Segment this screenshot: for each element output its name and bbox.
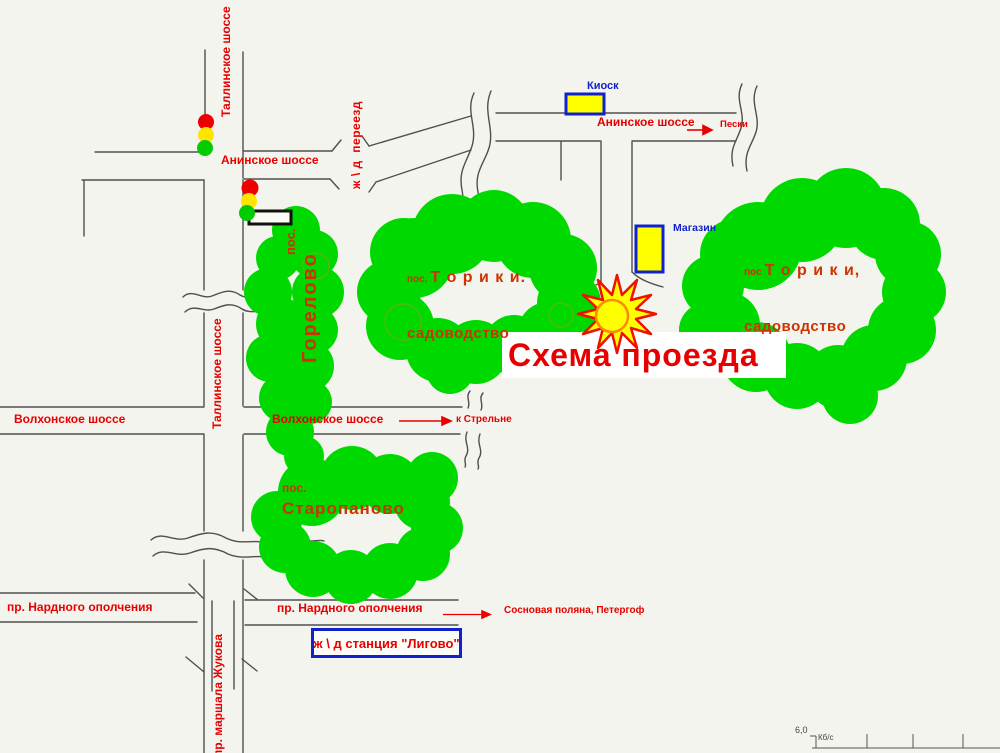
road-label-tallinskoe-top: Таллинское шоссе: [220, 6, 233, 117]
speed-value: 6,0: [795, 726, 808, 736]
sun-icon: [596, 300, 628, 332]
shop-rect: [636, 226, 663, 272]
traffic-light-north-icon: [197, 114, 214, 156]
settlement-staropanovo-prefix: пос.: [282, 482, 306, 495]
river-strelna-up2: [481, 393, 483, 410]
rail-crossing-label: ж \ д переезд: [350, 101, 363, 189]
bus-stop-rect: [249, 211, 291, 224]
settlement-staropanovo-name: Старопаново: [282, 500, 405, 519]
page-title: Схема проезда: [508, 332, 786, 378]
arrow-to-sosnovaya-head: [482, 611, 490, 618]
shop-label: Магазин: [673, 223, 716, 235]
route-map: Таллинское шоссе Анинское шоссе ж \ д пе…: [0, 0, 1000, 753]
speed-unit: Кб/с: [818, 734, 833, 743]
settlement-toriki-right-prefix: пос: [744, 267, 762, 278]
arrow-to-strelna-head: [442, 417, 451, 425]
road-label-narodnogo-west: пр. Нардного ополчения: [7, 601, 153, 614]
destination-label-peski: Пески: [720, 120, 748, 130]
destination-label-sosnovaya: Сосновая поляна, Петергоф: [504, 605, 644, 616]
road-label-aninskoe-west: Анинское шоссе: [221, 154, 319, 167]
destination-label-strelna: к Стрельне: [456, 414, 512, 425]
road-label-volkhonskoe-west: Волхонское шоссе: [14, 413, 125, 426]
road-label-zhukova: пр. маршала Жукова: [212, 634, 225, 753]
settlement-toriki-mid-prefix: пос.: [407, 274, 427, 285]
crossing-ticks-west: [330, 140, 341, 189]
settlement-gorelovo-name: Горелово: [299, 252, 321, 363]
road-label-aninskoe-east: Анинское шоссе: [597, 116, 695, 129]
settlement-toriki-mid-name: Т о р и к и.: [430, 269, 526, 287]
cloud-staropanovo: [251, 446, 463, 604]
road-diagonal-rail: [369, 116, 471, 182]
arrow-to-peski-head: [703, 126, 712, 135]
road-label-tallinskoe-mid: Таллинское шоссе: [211, 318, 224, 429]
kiosk-rect: [566, 94, 604, 114]
speed-graph-lines: [810, 734, 1000, 748]
settlement-gorelovo-prefix: пос.: [284, 229, 298, 255]
road-aninskoe-west: [82, 152, 204, 236]
river-strelna-down: [465, 432, 468, 467]
ligovo-station-label: ж \ д станция "Лигово": [313, 636, 459, 651]
settlement-toriki-right-name: Т о р и к и,: [765, 262, 861, 280]
river-strelna-up: [468, 391, 470, 408]
kiosk-label: Киоск: [587, 80, 619, 92]
road-to-destination: [601, 142, 632, 282]
road-label-narodnogo-east: пр. Нардного ополчения: [277, 602, 423, 615]
river-strelna-down2: [478, 434, 481, 469]
road-label-volkhonskoe-mid: Волхонское шоссе: [272, 413, 383, 426]
ligovo-station-box: ж \ д станция "Лигово": [311, 628, 462, 658]
